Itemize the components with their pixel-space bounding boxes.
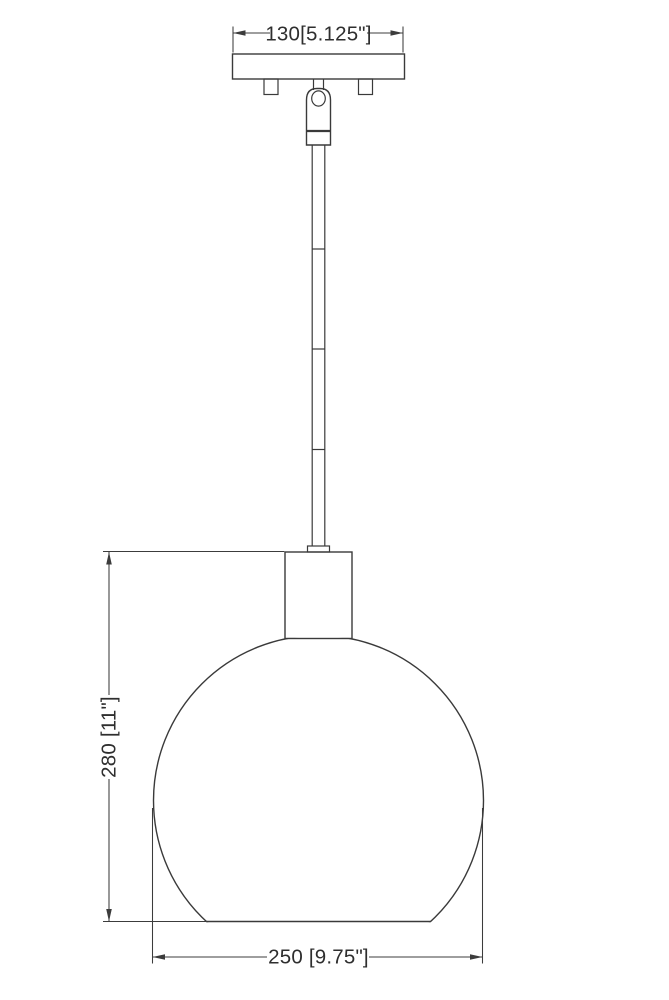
canopy-plate bbox=[233, 54, 405, 79]
sphere-top-mask bbox=[287, 632, 351, 638]
arrowhead-right bbox=[470, 954, 483, 960]
shade-sphere-outline bbox=[154, 636, 484, 966]
rod-collar bbox=[308, 546, 330, 552]
arrowhead-top bbox=[106, 552, 112, 565]
globe-shade bbox=[154, 632, 484, 967]
mounting-screw-right bbox=[359, 79, 373, 95]
canopy-width-label: 130[5.125"] bbox=[265, 23, 371, 46]
dimension-canopy-width: 130[5.125"] bbox=[233, 23, 403, 53]
drawing-canvas: 130[5.125"] 280 [11"] 250 [9.75"] bbox=[0, 0, 669, 1000]
socket-holder bbox=[285, 552, 352, 639]
arrowhead-left bbox=[233, 30, 246, 36]
swivel-pivot-pin bbox=[312, 91, 326, 106]
pendant-light-technical-drawing: 130[5.125"] 280 [11"] 250 [9.75"] bbox=[0, 0, 669, 1000]
arrowhead-left bbox=[153, 954, 166, 960]
mounting-screw-left bbox=[264, 79, 278, 95]
overall-height-label: 280 [11"] bbox=[98, 696, 121, 778]
dimension-overall-height: 280 [11"] bbox=[98, 552, 285, 922]
arrowhead-right bbox=[391, 30, 404, 36]
swivel-joint-body bbox=[307, 89, 331, 146]
arrowhead-bottom bbox=[106, 909, 112, 922]
shade-diameter-label: 250 [9.75"] bbox=[268, 946, 369, 969]
socket-holder-body bbox=[285, 552, 352, 639]
stem-assembly bbox=[307, 79, 331, 552]
